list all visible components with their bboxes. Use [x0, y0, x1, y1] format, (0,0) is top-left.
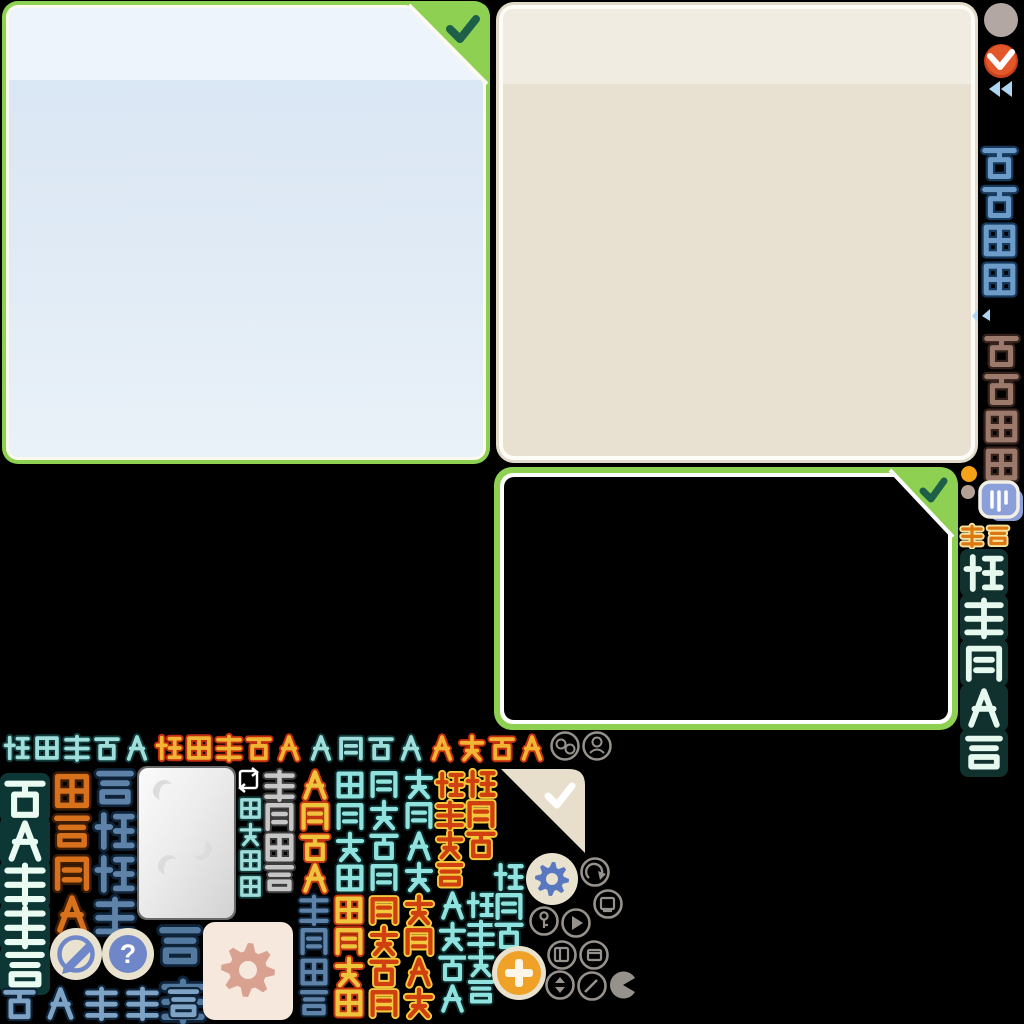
svg-text:?: ? — [120, 939, 137, 969]
